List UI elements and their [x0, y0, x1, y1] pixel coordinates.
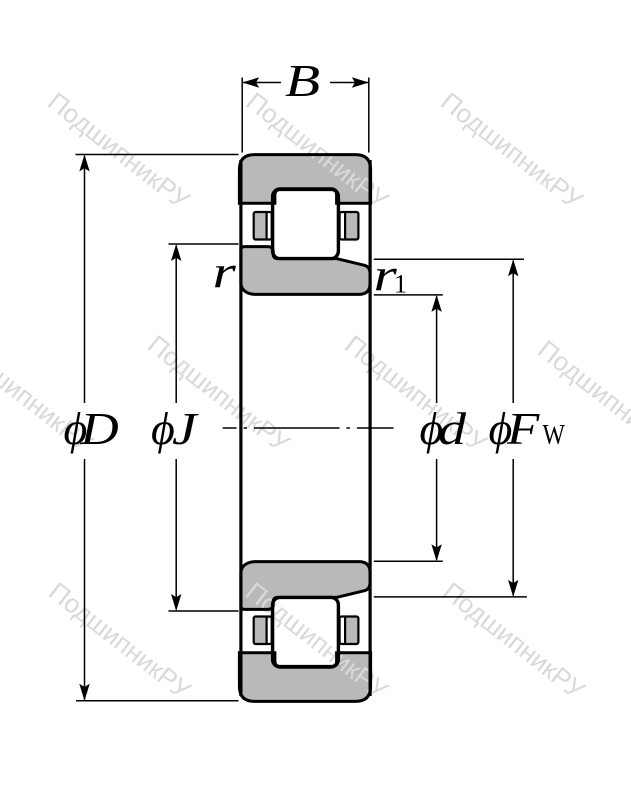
svg-text:D: D	[79, 403, 118, 454]
svg-text:1: 1	[394, 270, 407, 299]
svg-text:r: r	[213, 246, 237, 298]
svg-text:F: F	[506, 403, 540, 454]
svg-text:d: d	[438, 404, 466, 455]
svg-text:J: J	[172, 403, 199, 454]
svg-text:W: W	[543, 418, 565, 451]
svg-text:B: B	[285, 56, 320, 106]
